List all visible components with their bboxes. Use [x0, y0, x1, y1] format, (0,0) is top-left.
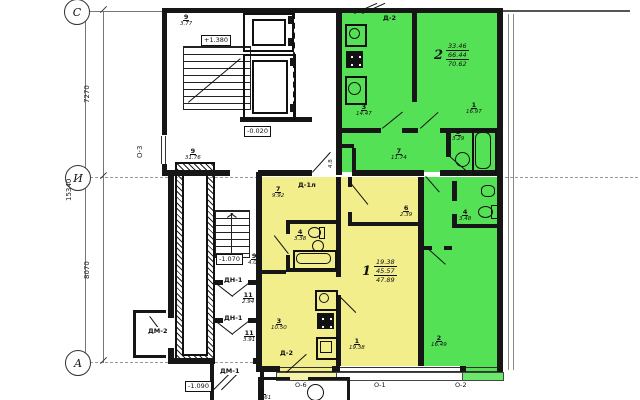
grid-bubble-c: С — [64, 0, 90, 25]
window-label-o2: О-2 — [455, 381, 467, 389]
room-label: 6 2.39 — [400, 202, 412, 218]
apt-total-area: 70.62 — [446, 60, 469, 68]
balcony-wall — [308, 377, 350, 380]
apt-heated-area: 45.57 — [374, 267, 397, 276]
bathtub-inner-icon — [296, 253, 331, 264]
window-label-o3: О-3 — [136, 146, 144, 159]
door-leaf — [214, 282, 233, 297]
balcony-wall — [258, 377, 290, 380]
elevator-cab-large — [252, 60, 288, 114]
washer-drum-icon — [348, 82, 361, 95]
wall — [341, 128, 381, 133]
door-label-dn1-lower: ДН-1 — [224, 314, 242, 322]
room-label: 1 19.38 — [349, 335, 365, 351]
room-number: 11 — [244, 330, 255, 337]
room-area: 2.94 — [242, 299, 254, 305]
niche-wall — [341, 144, 354, 148]
wall — [497, 8, 503, 372]
wall — [162, 8, 503, 13]
room-area: 4.07 — [248, 260, 260, 266]
wall — [444, 246, 452, 250]
room-number: 2 — [436, 335, 443, 342]
room-area: 10.50 — [271, 325, 287, 331]
wc-wall — [452, 224, 503, 228]
niche-wall — [352, 148, 356, 170]
floor-plan: С И А 7270 15340 8070 О-3 — [0, 0, 640, 400]
apt2-summary: 2 33.46 66.44 70.62 — [434, 42, 469, 68]
window-label-o6: О-6 — [295, 381, 307, 389]
room-label: 11 2.94 — [242, 289, 254, 305]
wall — [460, 366, 466, 372]
room-area: 3.48 — [459, 216, 471, 222]
dim-7270: 7270 — [83, 85, 91, 103]
wall — [258, 170, 312, 176]
sink-bowl-icon — [319, 293, 329, 303]
sink-bowl-icon — [349, 28, 360, 39]
room-number: 1 — [354, 338, 361, 345]
wall — [348, 212, 352, 226]
sink-icon — [455, 152, 470, 167]
room-area: 11.74 — [391, 155, 407, 161]
wall — [352, 170, 424, 176]
wall — [168, 358, 213, 364]
room-area: 31.76 — [185, 155, 201, 161]
wall — [332, 366, 340, 372]
door-leaf — [214, 320, 233, 335]
room-label: 1 16.97 — [466, 99, 482, 115]
stove-icon — [346, 51, 363, 68]
elevation-floor: -0.020 — [244, 126, 271, 137]
room-number: 9 — [183, 14, 190, 21]
room-number: 11 — [243, 292, 254, 299]
room-number: 3 — [361, 104, 368, 111]
window-line — [466, 367, 500, 368]
room-label: 4 3.38 — [294, 226, 306, 242]
room-number: 9 — [251, 253, 258, 260]
room-area: 2.39 — [400, 212, 412, 218]
door-label-dn1-upper: ДН-1 — [224, 276, 242, 284]
room-number: 3 — [276, 318, 283, 325]
window-line — [340, 367, 460, 368]
bathroom-wall — [286, 220, 336, 224]
service-shaft-inner — [182, 170, 208, 356]
wall — [418, 177, 424, 366]
apt-living-area: 33.46 — [446, 42, 469, 51]
room-area: 3.38 — [294, 236, 306, 242]
room-area: 3.91 — [243, 337, 255, 343]
apt-areas: 33.46 66.44 70.62 — [446, 42, 469, 68]
balcony-table-icon — [307, 384, 324, 400]
room-number: 4 — [297, 229, 304, 236]
elevation-stair-top: +1.380 — [201, 35, 231, 46]
room-label: 2 16.49 — [431, 332, 447, 348]
grid-letter-i: И — [73, 172, 83, 185]
wall — [162, 13, 167, 135]
bathtub-inner-icon — [475, 132, 491, 169]
storage-area-label: 4.8 — [328, 159, 334, 168]
room-number: 6 — [403, 205, 410, 212]
fridge-inner-icon — [320, 341, 332, 353]
wall — [262, 270, 286, 274]
apt-number: 1 — [362, 264, 371, 279]
toilet-tank-icon — [319, 227, 325, 239]
wc-wall — [452, 181, 457, 201]
wall — [412, 8, 417, 102]
door-label-dm2: ДМ-2 — [148, 327, 167, 335]
wall-adjacent-section — [503, 10, 630, 12]
staircase-lower — [215, 210, 250, 258]
room-number: 9 — [190, 148, 197, 155]
room-number: 1 — [471, 102, 478, 109]
window-sill — [462, 372, 504, 381]
loggia-line — [508, 14, 509, 370]
room-label: 9 4.07 — [248, 250, 260, 266]
bathroom-wall — [286, 224, 290, 234]
room-area: 4.61 — [259, 395, 271, 400]
elevator-cab-small — [252, 19, 286, 46]
room-area: 14.47 — [356, 111, 372, 117]
elevation-entry: -1.090 — [185, 381, 212, 392]
room-number: 4 — [462, 209, 469, 216]
apt-living-area: 19.38 — [374, 258, 397, 267]
window-label-o1: О-1 — [374, 381, 386, 389]
door-label-dm1: ДМ-1 — [220, 367, 239, 375]
room-area: 9.92 — [272, 193, 284, 199]
elevation-stair-mid: -1.070 — [216, 254, 243, 265]
apt-number: 2 — [434, 48, 443, 63]
window-o3-line — [161, 136, 162, 164]
wall — [256, 366, 280, 372]
room-area: 3.77 — [180, 21, 192, 27]
room-label: 7 9.92 — [272, 183, 284, 199]
room-label: 3 14.47 — [356, 101, 372, 117]
window-o3-line — [165, 136, 166, 164]
toilet-tank-icon — [491, 205, 498, 219]
window-sill — [336, 372, 466, 381]
stove-icon — [317, 313, 334, 329]
room-label: 5 3.29 — [452, 126, 464, 142]
room-label: 8 4.61 — [259, 385, 271, 400]
wall — [256, 172, 262, 366]
porch-wall — [133, 310, 136, 358]
dim-15340: 15340 — [65, 179, 73, 201]
sink-icon — [481, 185, 495, 197]
balcony-wall — [347, 377, 350, 400]
porch-wall — [133, 355, 166, 358]
room-label: 3 10.50 — [271, 315, 287, 331]
room-label: 7 11.74 — [391, 145, 407, 161]
door-leaf — [221, 373, 238, 390]
apt1-summary: 1 19.38 45.57 47.89 — [362, 258, 397, 284]
apt-heated-area: 66.44 — [446, 51, 469, 60]
room-number: 8 — [259, 388, 266, 395]
wall — [168, 172, 174, 318]
window-line — [280, 367, 332, 368]
grid-letter-c: С — [73, 6, 81, 19]
porch-wall — [133, 310, 166, 313]
wall — [402, 128, 418, 133]
loggia-line — [513, 14, 514, 370]
room-label: 4 3.48 — [459, 206, 471, 222]
wall — [253, 358, 260, 364]
room-number: 5 — [455, 129, 462, 136]
room-area: 16.97 — [466, 109, 482, 115]
grid-bubble-a: А — [65, 350, 91, 376]
room-label: 9 31.76 — [185, 145, 201, 161]
room-label: 11 3.91 — [243, 327, 255, 343]
door-label-d1l: Д-1л — [298, 181, 316, 189]
room-area: 19.38 — [349, 345, 365, 351]
dim-line-inner — [103, 12, 104, 363]
wc-wall — [452, 214, 457, 224]
stair-arrow-line — [231, 213, 232, 255]
room-number: 7 — [396, 148, 403, 155]
wall — [348, 222, 424, 226]
apt-total-area: 47.89 — [374, 276, 397, 284]
room-number: 7 — [275, 186, 282, 193]
dim-8070: 8070 — [83, 261, 91, 279]
door-label-d2-top: Д-2 — [383, 14, 396, 22]
door-label-d2-balcony: Д-2 — [280, 349, 293, 357]
room-label: 9 3.77 — [180, 11, 192, 27]
wall — [446, 133, 451, 157]
apt-areas: 19.38 45.57 47.89 — [374, 258, 397, 284]
room-area: 3.29 — [452, 136, 464, 142]
room-area: 16.49 — [431, 342, 447, 348]
grid-letter-a: А — [74, 357, 82, 370]
wall — [336, 8, 342, 175]
